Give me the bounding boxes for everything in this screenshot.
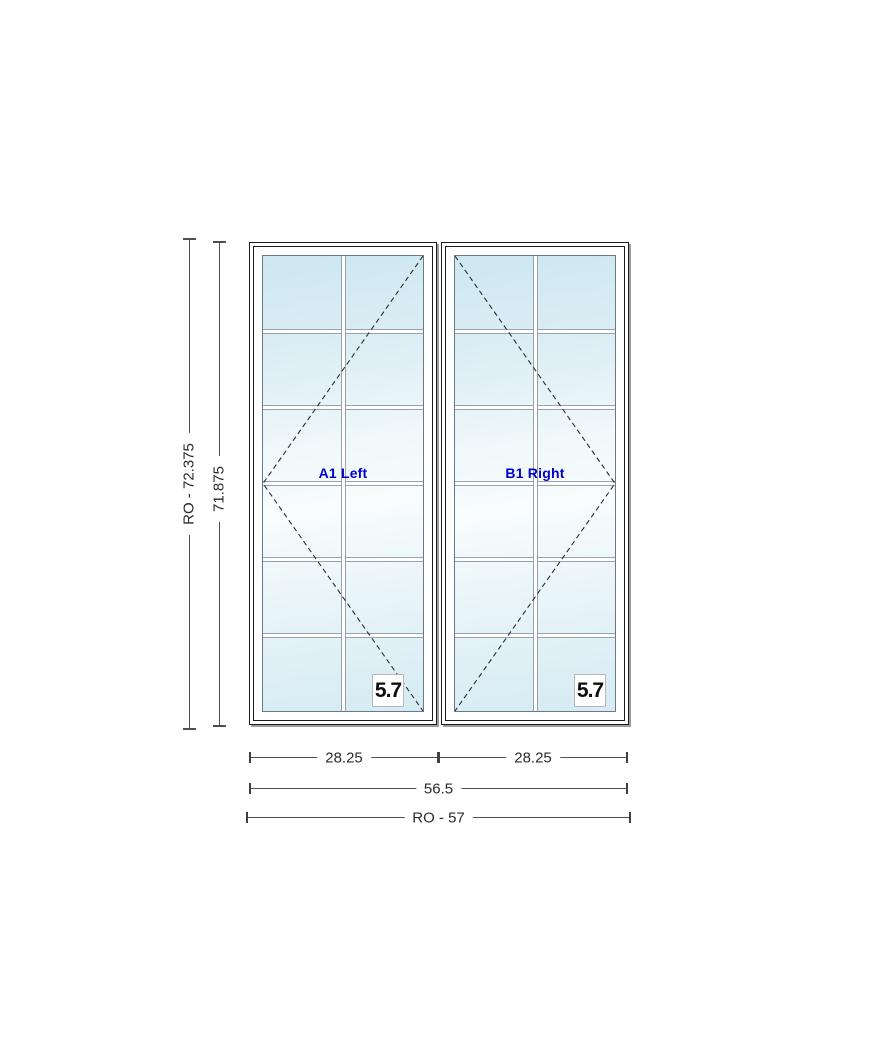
dim-label-width-right: 28.25: [506, 749, 560, 766]
dim-tick: [213, 241, 226, 243]
panel-label: B1 Right: [455, 465, 615, 481]
swing-indicator-left-icon: [263, 256, 423, 711]
dim-width-left: 28.25: [249, 751, 439, 764]
dim-width-ro: RO - 57: [246, 811, 631, 824]
swing-indicator-right-icon: [455, 256, 615, 711]
window-panel-a1[interactable]: A1 Left 5.7: [249, 242, 437, 725]
egress-value-badge: 5.7: [574, 674, 606, 707]
egress-value-badge: 5.7: [372, 674, 404, 707]
glass-area: B1 Right 5.7: [454, 255, 616, 712]
dim-width-right: 28.25: [438, 751, 628, 764]
window-drawing-canvas: RO - 72.375 71.875 A1 Left 5.7: [0, 0, 870, 1038]
dim-tick: [183, 728, 196, 730]
dim-tick: [626, 783, 628, 794]
sash-frame: A1 Left 5.7: [253, 246, 433, 721]
dim-tick: [626, 752, 628, 763]
panel-label: A1 Left: [263, 465, 423, 481]
dim-label-height-ro: RO - 72.375: [181, 433, 198, 535]
dim-label-width-ro: RO - 57: [404, 809, 473, 826]
dim-tick: [246, 812, 248, 823]
dim-tick: [629, 812, 631, 823]
dim-tick: [249, 752, 251, 763]
glass-area: A1 Left 5.7: [262, 255, 424, 712]
dim-tick: [213, 725, 226, 727]
dim-tick: [249, 783, 251, 794]
dim-tick: [438, 752, 440, 763]
dim-label-width-left: 28.25: [317, 749, 371, 766]
sash-frame: B1 Right 5.7: [445, 246, 625, 721]
dim-width-total: 56.5: [249, 782, 628, 795]
window-panel-b1[interactable]: B1 Right 5.7: [441, 242, 629, 725]
dim-label-height-frame: 71.875: [211, 456, 228, 522]
dim-tick: [183, 238, 196, 240]
dim-label-width-total: 56.5: [416, 780, 461, 797]
